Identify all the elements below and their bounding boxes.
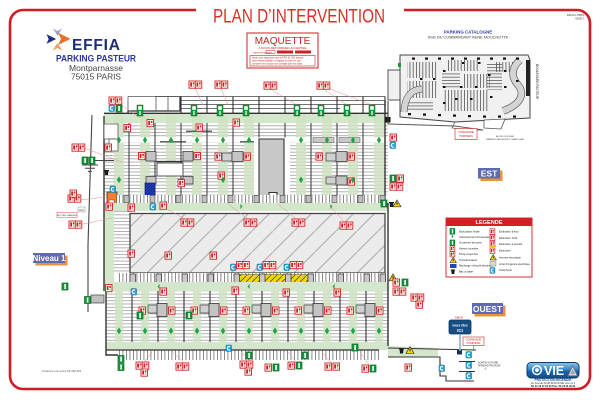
svg-text:Arret d’urgence electrique: Arret d’urgence electrique (499, 262, 530, 266)
svg-text:A NOUS RETOURNER ACCEPTEE: A NOUS RETOURNER ACCEPTEE (259, 46, 307, 50)
svg-text:ACC: ACC (79, 209, 84, 212)
svg-text:ICI: ICI (457, 328, 463, 333)
svg-text:COMMANDE: COMMANDE (458, 130, 474, 134)
svg-text:Extincteur CO2: Extincteur CO2 (499, 236, 518, 240)
svg-text:Evacuation finale: Evacuation finale (459, 230, 480, 234)
svg-text:PROTECTION INCENDIE: PROTECTION INCENDIE (534, 378, 571, 382)
svg-text:Bac a sable: Bac a sable (459, 269, 474, 273)
svg-text:Recharge vehicule electrique: Recharge vehicule electrique (459, 264, 494, 268)
svg-text:Interphone: Interphone (499, 268, 512, 272)
svg-text:ACCUEIL PARKING: ACCUEIL PARKING (57, 214, 77, 217)
svg-text:ACCES VOITURE: ACCES VOITURE (496, 135, 514, 138)
svg-text:Alarme incendie: Alarme incendie (459, 246, 479, 250)
svg-text:concerne les circuits non corr: concerne les circuits non corriges par v… (252, 63, 303, 66)
svg-text:POMPIERS: POMPIERS (459, 134, 473, 138)
svg-text:PARKING CATALOGNE: PARKING CATALOGNE (444, 30, 492, 35)
svg-text:BOULEVARD PASTEUR: BOULEVARD PASTEUR (535, 64, 539, 100)
svg-text:POMPIERS: POMPIERS (467, 341, 481, 345)
svg-text:RUE DU COMMANDANT RENE MOUCHOT: RUE DU COMMANDANT RENE MOUCHOTTE (428, 36, 509, 40)
svg-text:Ouverture de porte: Ouverture de porte (459, 241, 482, 245)
svg-text:Transformateur: Transformateur (459, 258, 477, 262)
svg-text:COMMANDE: COMMANDE (466, 338, 482, 342)
svg-text:PARKING PASTEUR: PARKING PASTEUR (478, 365, 501, 368)
svg-text:EFFIA-L75015: EFFIA-L75015 (567, 13, 584, 17)
svg-text:Conforme a la norme NF S60-303: Conforme a la norme NF S60-303 (42, 369, 82, 373)
svg-text:LEGENDE: LEGENDE (475, 220, 502, 226)
svg-text:Niveau 1: Niveau 1 (33, 254, 66, 263)
svg-text:Porte coupe-feu: Porte coupe-feu (459, 252, 479, 256)
svg-text:Extincteur a poudre: Extincteur a poudre (499, 242, 523, 246)
svg-text:Tel 01 46 07 84 00 Port. 06: Tel 01 46 07 84 00 Port. 06 24 06 49 93 (531, 385, 576, 388)
svg-text:Cheminement d’evacuation: Cheminement d’evacuation (459, 235, 492, 239)
svg-text:Extincteur: Extincteur (499, 249, 511, 253)
svg-text:OUEST: OUEST (473, 304, 503, 314)
svg-text:Armoire electrique: Armoire electrique (499, 255, 521, 259)
svg-text:○ sans remarques: ○ sans remarques (251, 51, 273, 55)
svg-text:DIBON: DIBON (455, 316, 463, 320)
svg-text:-1-: -1- (484, 368, 487, 371)
svg-text:75015 PARIS: 75015 PARIS (71, 72, 121, 82)
svg-text:600317: 600317 (575, 17, 584, 21)
svg-text:PARKING PASTEUR ET CATALOGNE: PARKING PASTEUR ET CATALOGNE (486, 138, 524, 141)
svg-text:Extincteur a eau: Extincteur a eau (499, 230, 519, 234)
svg-text:EST: EST (481, 169, 498, 179)
svg-text:VIE: VIE (544, 364, 564, 378)
svg-text:PLAN D’INTERVENTION: PLAN D’INTERVENTION (213, 6, 385, 28)
svg-text:EFFIA: EFFIA (72, 37, 121, 54)
